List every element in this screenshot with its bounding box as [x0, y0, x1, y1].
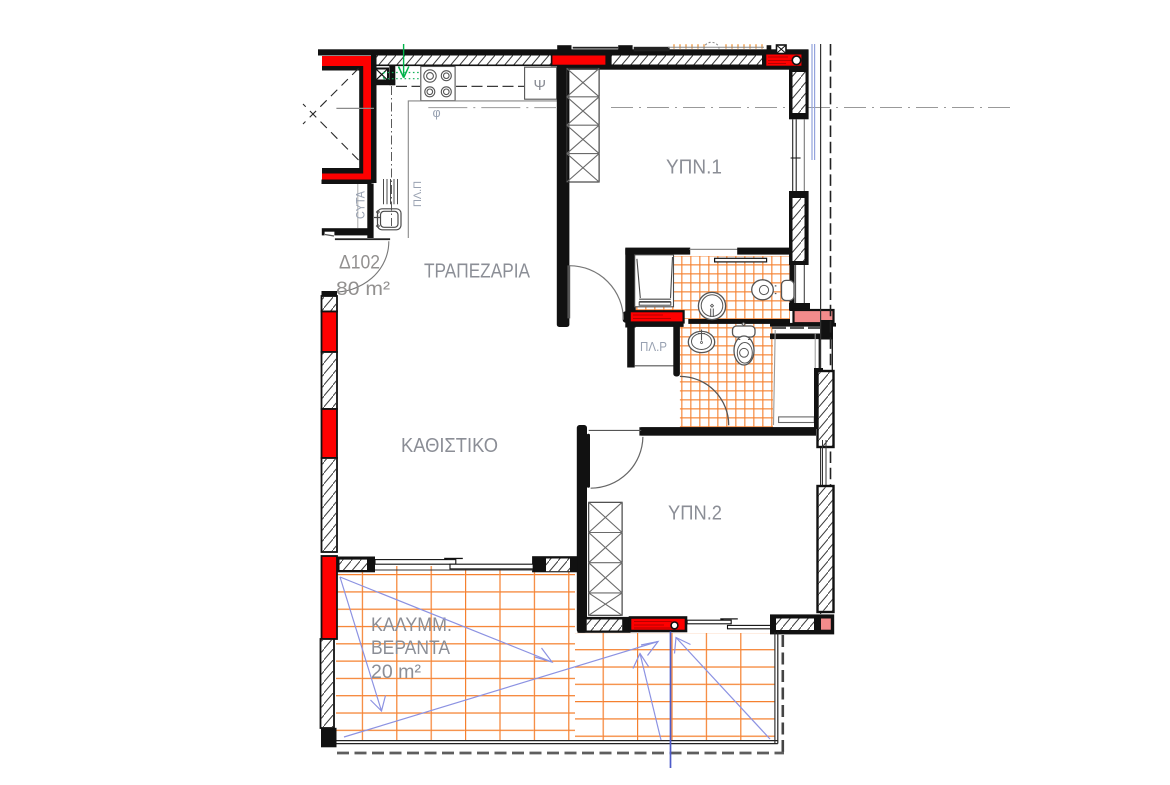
svg-text:ΤΡΑΠΕΖΑΡΙΑ: ΤΡΑΠΕΖΑΡΙΑ: [424, 261, 531, 283]
svg-text:φ: φ: [433, 106, 441, 120]
svg-text:ΥΠΝ.1: ΥΠΝ.1: [666, 157, 722, 179]
svg-text:20 m²: 20 m²: [371, 662, 421, 683]
svg-text:ΒΕΡΑΝΤΑ: ΒΕΡΑΝΤΑ: [371, 638, 450, 659]
svg-text:Ψ: Ψ: [534, 77, 547, 94]
svg-text:ΚΑΛΥΜΜ.: ΚΑΛΥΜΜ.: [371, 615, 452, 636]
svg-text:CYTA: CYTA: [356, 191, 368, 219]
svg-text:ΠΛ.Ρ: ΠΛ.Ρ: [640, 339, 667, 354]
svg-text:ΠΛ.Π: ΠΛ.Π: [412, 181, 424, 207]
svg-text:ΚΑΘΙΣΤΙΚΟ: ΚΑΘΙΣΤΙΚΟ: [401, 435, 498, 457]
svg-text:Δ102: Δ102: [339, 253, 380, 274]
svg-text:ΥΠΝ.2: ΥΠΝ.2: [668, 503, 722, 525]
svg-text:80 m²: 80 m²: [336, 279, 390, 300]
